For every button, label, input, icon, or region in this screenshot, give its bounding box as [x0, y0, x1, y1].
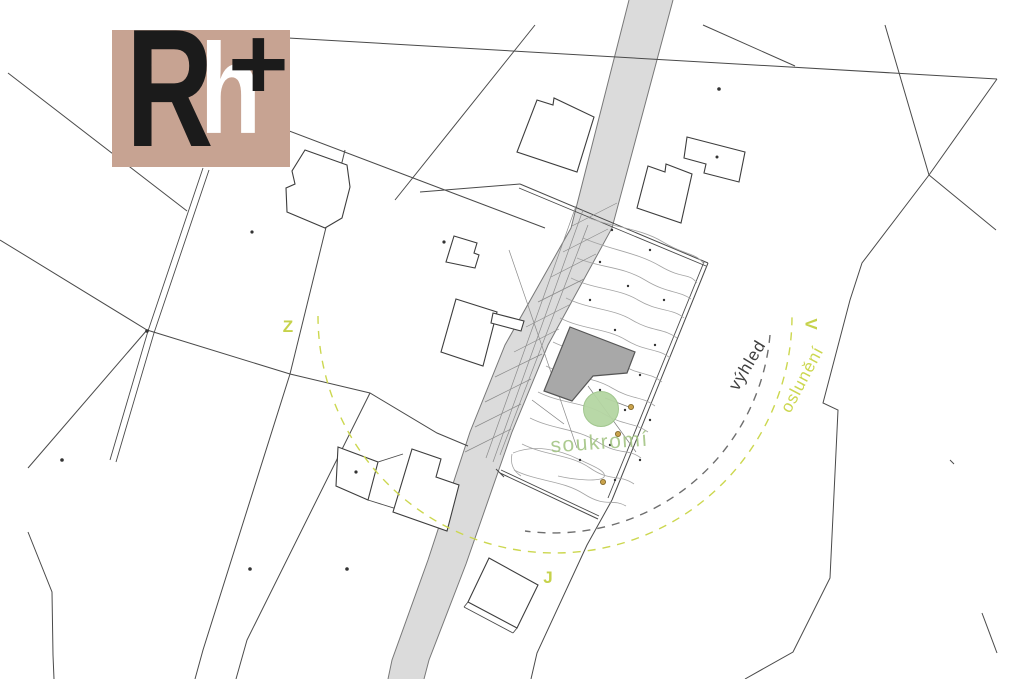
building	[441, 299, 497, 366]
building	[684, 137, 745, 182]
building	[517, 98, 594, 172]
building	[393, 449, 459, 531]
privacy-label: soukromí	[550, 428, 650, 458]
building	[491, 313, 524, 331]
compass-south-label: J	[543, 568, 552, 587]
logo-letter-r: R	[126, 4, 210, 172]
road	[388, 0, 673, 679]
building	[286, 150, 350, 228]
building	[336, 447, 378, 500]
logo-plus-icon: +	[228, 12, 289, 116]
view-label: výhled	[725, 337, 770, 394]
compass-east-label: V	[802, 318, 821, 330]
building	[637, 164, 692, 223]
compass-west-label: Z	[283, 317, 293, 336]
sunlight-label: oslunění	[777, 343, 828, 416]
main-building	[544, 327, 635, 401]
building	[446, 236, 479, 268]
building	[468, 558, 538, 628]
site-plan-page: Z V J výhled oslunění soukromí R h +	[0, 0, 1024, 679]
logo: R h +	[112, 30, 290, 167]
tree-icon	[584, 392, 619, 427]
